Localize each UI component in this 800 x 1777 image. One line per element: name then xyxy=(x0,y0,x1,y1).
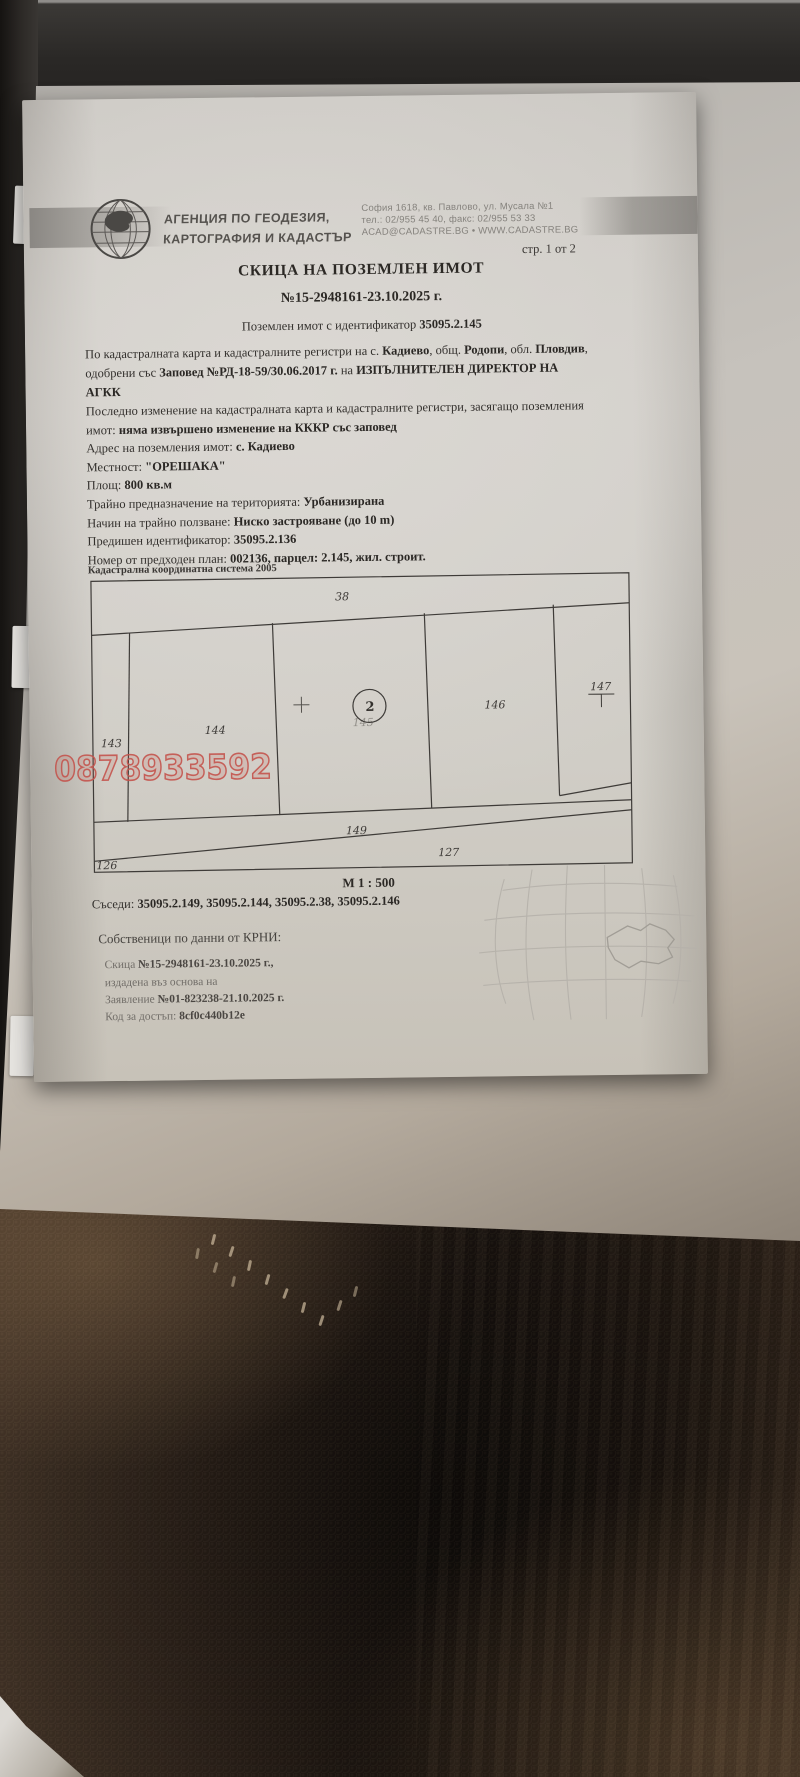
agency-name-line1: АГЕНЦИЯ ПО ГЕОДЕЗИЯ, xyxy=(164,207,353,229)
page-indicator: стр. 1 от 2 xyxy=(454,241,576,257)
field-value: 800 кв.м xyxy=(124,477,172,492)
field-row-territory-purpose: Трайно предназначение на територията: Ур… xyxy=(87,494,385,513)
field-row-locality: Местност: "ОРЕШАКА" xyxy=(86,459,225,476)
neighbors-value: 35095.2.149, 35095.2.144, 35095.2.38, 35… xyxy=(137,894,400,911)
field-label: Трайно предназначение на територията: xyxy=(87,495,304,512)
parcel-label-144: 144 xyxy=(205,724,226,737)
based-on-line: издадена въз основа на xyxy=(105,976,218,989)
phone-watermark: 0878933592 xyxy=(54,747,272,790)
parcel-label-127: 127 xyxy=(438,846,459,859)
field-value: Ниско застрояване (до 10 m) xyxy=(234,513,395,529)
parcel-label-147: 147 xyxy=(590,680,611,693)
owners-heading: Собственици по данни от КРНИ: xyxy=(98,929,281,947)
paragraph-line: Последно изменение на кадастралната карт… xyxy=(86,398,584,419)
field-label: Предишен идентификатор: xyxy=(87,533,234,549)
field-row-permanent-use: Начин на трайно ползване: Ниско застрояв… xyxy=(87,513,394,532)
cadastral-sketch-page: АГЕНЦИЯ ПО ГЕОДЕЗИЯ, КАРТОГРАФИЯ И КАДАС… xyxy=(22,92,708,1082)
field-label: Начин на трайно ползване: xyxy=(87,515,234,531)
field-value: "ОРЕШАКА" xyxy=(145,459,226,474)
property-id-line: Поземлен имот с идентификатор 35095.2.14… xyxy=(25,314,699,337)
agency-address: София 1618, кв. Павлово, ул. Мусала №1 т… xyxy=(361,200,578,239)
sketch-reference-line: Скица №15-2948161-23.10.2025 г., xyxy=(105,957,274,971)
field-row-address: Адрес на поземления имот: с. Кадиево xyxy=(86,439,295,457)
agency-address-line3: ACAD@CADASTRE.BG • WWW.CADASTRE.BG xyxy=(362,224,579,239)
field-row-previous-id: Предишен идентификатор: 35095.2.136 xyxy=(87,532,296,550)
paragraph-line: АГКК xyxy=(86,385,121,400)
property-id-prefix: Поземлен имот с идентификатор xyxy=(242,317,420,333)
field-row-area: Площ: 800 кв.м xyxy=(87,477,172,493)
document-number: №15-2948161-23.10.2025 г. xyxy=(24,286,698,310)
field-value: 35095.2.136 xyxy=(234,532,297,547)
agency-globe-logo-icon xyxy=(87,196,154,263)
neighbors-line: Съседи: 35095.2.149, 35095.2.144, 35095.… xyxy=(92,894,400,913)
survey-cross-icon xyxy=(293,697,309,713)
field-label: Площ: xyxy=(87,478,125,492)
field-value: Урбанизирана xyxy=(303,494,384,509)
field-label: Адрес на поземления имот: xyxy=(86,440,236,456)
paragraph-line: По кадастралната карта и кадастралните р… xyxy=(85,341,588,362)
property-id-value: 35095.2.145 xyxy=(419,317,482,332)
svg-text:2: 2 xyxy=(365,700,374,715)
parcel-label-149: 149 xyxy=(346,824,367,837)
agency-name-line2: КАРТОГРАФИЯ И КАДАСТЪР xyxy=(163,227,352,249)
application-line: Заявление №01-823238-21.10.2025 г. xyxy=(105,992,284,1006)
agency-name: АГЕНЦИЯ ПО ГЕОДЕЗИЯ, КАРТОГРАФИЯ И КАДАС… xyxy=(163,207,353,249)
field-label: Местност: xyxy=(86,460,145,475)
carpet-stripes xyxy=(416,1150,800,1777)
access-code-line: Код за достъп: 8cf0c440b12e xyxy=(105,1009,245,1023)
paper-tab xyxy=(9,1016,34,1076)
parcel-label-146: 146 xyxy=(484,698,505,711)
carpet-background xyxy=(0,1150,800,1777)
paragraph-line: одобрени със Заповед №РД-18-59/30.06.201… xyxy=(85,361,558,382)
parcel-label-38: 38 xyxy=(335,590,349,603)
field-value: с. Кадиево xyxy=(236,439,295,454)
parcel-label-126: 126 xyxy=(96,859,117,872)
globe-watermark-icon xyxy=(473,862,700,1023)
paragraph-line: имот: няма извършено изменение на КККР с… xyxy=(86,420,397,439)
header-toner-band-right xyxy=(579,196,697,235)
photo-scene: АГЕНЦИЯ ПО ГЕОДЕЗИЯ, КАРТОГРАФИЯ И КАДАС… xyxy=(0,0,800,1777)
parcel-147-leader xyxy=(588,694,614,707)
cadastral-map: 38 143 144 145 146 147 149 126 127 2 xyxy=(85,557,639,884)
neighbors-label: Съседи: xyxy=(92,897,138,912)
